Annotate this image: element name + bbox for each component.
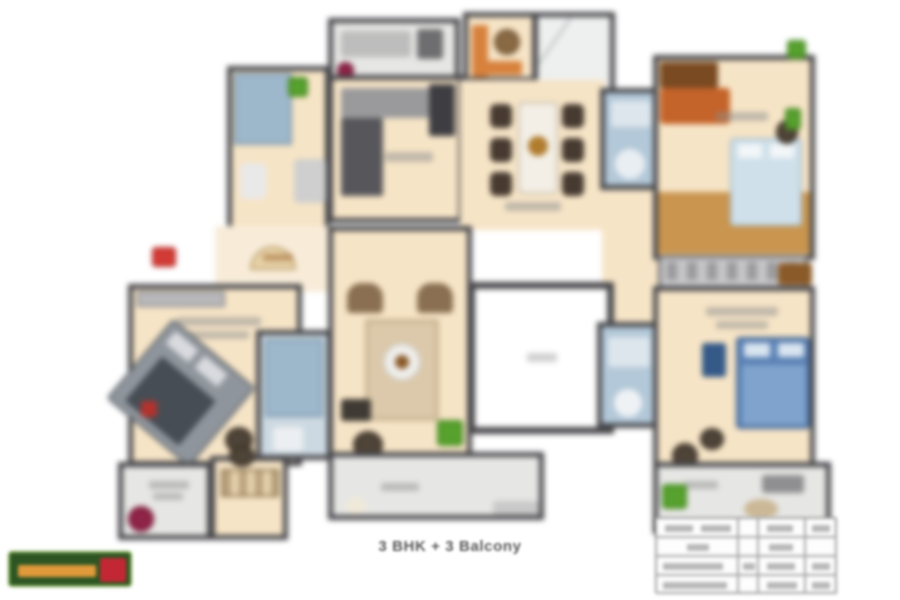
area-table-cell <box>656 518 738 537</box>
wardrobe-icon <box>137 291 225 307</box>
basin-icon <box>294 159 326 203</box>
room-label-smudge <box>716 321 768 329</box>
basin-icon <box>273 427 303 451</box>
closet-icon <box>221 469 279 497</box>
bench-icon <box>493 501 539 515</box>
area-table-cell <box>758 556 805 575</box>
kitchen-counter-l <box>341 118 383 196</box>
void-label-smudge <box>527 353 557 362</box>
chair-icon <box>490 172 512 196</box>
balcony-label-smudge <box>381 483 419 491</box>
coffee-table-icon <box>383 343 421 381</box>
wc-icon <box>615 149 645 179</box>
foyer-label-smudge <box>263 254 293 261</box>
balcony-label-smudge <box>149 481 189 489</box>
area-table-cell <box>656 575 738 594</box>
appliance-icon <box>417 29 443 59</box>
area-table-cell <box>758 575 805 594</box>
bed-icon <box>730 138 802 226</box>
area-table-cell <box>758 518 805 537</box>
lift-void <box>468 282 614 434</box>
area-table-cell <box>738 518 758 537</box>
area-table-cell <box>656 556 738 575</box>
room-label-smudge <box>189 331 249 339</box>
area-table-cell <box>758 537 805 556</box>
side-table-icon <box>702 343 726 377</box>
basin-icon <box>611 101 651 127</box>
dressing-area <box>210 456 288 540</box>
area-table-cell <box>738 556 758 575</box>
wardrobe-icon <box>660 62 718 88</box>
balcony-label-smudge <box>684 481 718 489</box>
plant-icon <box>437 420 463 446</box>
bathroom-bottom-left <box>256 330 332 460</box>
shower-area <box>234 73 292 145</box>
area-table-cell <box>738 575 758 594</box>
area-table-cell <box>738 537 758 556</box>
brand-logo <box>8 551 132 587</box>
tv-unit-icon <box>341 399 371 421</box>
plant-icon <box>128 506 154 532</box>
plant-icon <box>785 108 801 130</box>
logo-wordmark <box>18 565 96 577</box>
area-table-cell <box>805 518 837 537</box>
area-table-cell <box>805 575 837 594</box>
balcony-living <box>328 452 544 520</box>
wc-icon <box>614 389 642 417</box>
shower-area <box>608 337 650 367</box>
area-table-cell <box>805 556 837 575</box>
bed-icon <box>736 337 810 429</box>
armchair-icon <box>417 283 453 313</box>
chair-icon <box>562 138 584 162</box>
room-label-smudge <box>716 112 768 121</box>
bedroom-top-right <box>653 55 815 260</box>
bench-icon <box>762 475 804 493</box>
table-icon <box>744 499 778 519</box>
area-table <box>655 517 836 593</box>
area-table-cell <box>805 537 837 556</box>
plant-icon <box>662 484 687 509</box>
room-label-smudge <box>177 317 261 326</box>
room-label-smudge <box>706 307 778 316</box>
chair-icon <box>562 104 584 128</box>
room-label-smudge <box>505 202 561 211</box>
wc-icon <box>240 163 266 199</box>
bathroom-right <box>597 322 661 428</box>
bedroom-bottom-right <box>653 286 815 468</box>
dresser-icon <box>778 263 812 285</box>
plant-icon <box>229 445 255 467</box>
fridge-icon <box>429 84 455 136</box>
floor-plan <box>0 0 900 600</box>
floor-plan-page: 3 BHK + 3 Balcony <box>0 0 900 600</box>
plant-icon <box>288 77 308 97</box>
plant-icon <box>700 428 724 450</box>
dining-table-icon <box>518 102 558 194</box>
logo-red-mark-icon <box>100 558 126 582</box>
kitchen-counter <box>341 88 429 118</box>
pebble-decor <box>345 497 367 515</box>
room-label-smudge <box>385 152 433 162</box>
plant-icon <box>787 40 806 59</box>
armchair-icon <box>347 283 383 313</box>
chair-icon <box>490 138 512 162</box>
shower-area <box>265 339 323 417</box>
side-table-icon <box>141 401 157 417</box>
basin-icon <box>494 29 520 55</box>
counter-orange <box>474 61 522 75</box>
utility-nook <box>463 12 537 82</box>
area-table-cell <box>656 537 738 556</box>
kitchen <box>328 75 463 223</box>
balcony-label-smudge <box>153 493 183 500</box>
utility-counter <box>341 31 411 57</box>
chair-icon <box>562 172 584 196</box>
dining-area <box>460 80 605 230</box>
entrance-marker-icon <box>152 247 176 267</box>
bathroom-top-left <box>227 66 330 232</box>
chair-icon <box>490 104 512 128</box>
